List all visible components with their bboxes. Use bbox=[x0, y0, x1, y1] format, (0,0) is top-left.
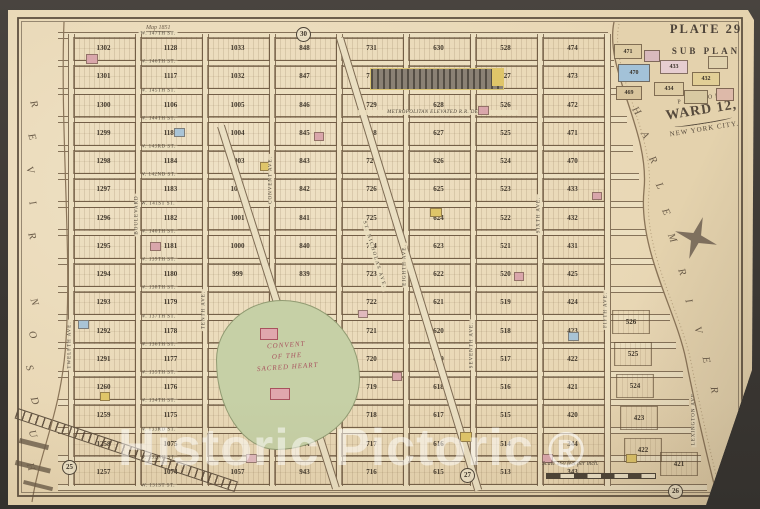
harlem-river-letter: L bbox=[653, 181, 666, 192]
hudson-river-letter: O bbox=[26, 330, 39, 342]
harlem-river-letter: V bbox=[691, 325, 704, 335]
hudson-river-letter: V bbox=[23, 165, 36, 175]
harlem-river-letter: E bbox=[700, 356, 712, 366]
plate-reference-circle: 30 bbox=[296, 27, 311, 42]
map-sheet: W. 147TH ST.W. 146TH ST.W. 145TH ST.W. 1… bbox=[8, 10, 754, 505]
subplan-block-number: 432 bbox=[693, 76, 719, 82]
plate-title: PLATE 29 bbox=[653, 22, 759, 37]
hudson-river-letter: R bbox=[27, 99, 40, 109]
scale-text: Scale 160 feet per inch. bbox=[542, 461, 598, 467]
subplan-block-number: 470 bbox=[619, 70, 649, 76]
subplan-block: 469 bbox=[616, 86, 642, 100]
subplan-block bbox=[708, 56, 728, 69]
subplan-block bbox=[684, 90, 708, 104]
map-source-note: Map 1851 bbox=[146, 25, 171, 32]
hudson-river-letter: S bbox=[23, 364, 35, 373]
hudson-river-letter: H bbox=[24, 462, 37, 474]
hudson-river-letter: E bbox=[25, 132, 38, 142]
harlem-river-letter: I bbox=[682, 298, 694, 306]
subplan-block: 433 bbox=[660, 60, 688, 74]
plate-reference-circle: 26 bbox=[668, 484, 683, 499]
subplan-block: 432 bbox=[692, 72, 720, 86]
harlem-river-letter: E bbox=[659, 207, 672, 218]
subplan-block-number: 434 bbox=[655, 86, 683, 92]
harlem-river-letter: H bbox=[629, 105, 643, 118]
map-annotations: PLATE 29 SUB PLAN PART OF WARD 12, NEW Y… bbox=[8, 10, 754, 505]
harlem-river-letter: R bbox=[675, 267, 688, 278]
hudson-river-letter: I bbox=[26, 200, 38, 208]
photo-background: W. 147TH ST.W. 146TH ST.W. 145TH ST.W. 1… bbox=[0, 0, 760, 509]
plate-reference-circle: 25 bbox=[62, 460, 77, 475]
hudson-river-letter: N bbox=[28, 297, 41, 308]
subplan-block: 470 bbox=[618, 64, 650, 82]
subplan-block bbox=[716, 88, 734, 101]
harlem-river-letter: R bbox=[708, 386, 720, 395]
subplan-block-number: 471 bbox=[615, 49, 641, 55]
subplan-block-number: 433 bbox=[661, 64, 687, 70]
harlem-river-letter: M bbox=[665, 232, 679, 245]
hudson-river-letter: R bbox=[25, 231, 38, 241]
harlem-river-letter: R bbox=[646, 155, 659, 167]
subplan-title: SUB PLAN bbox=[653, 46, 759, 56]
plate-reference-circle: 27 bbox=[460, 468, 475, 483]
subplan-block: 471 bbox=[614, 44, 642, 59]
subplan-block bbox=[644, 50, 660, 62]
hudson-river-letter: D bbox=[28, 396, 41, 408]
subplan-block: 434 bbox=[654, 82, 684, 96]
hudson-river-letter: U bbox=[26, 429, 39, 441]
scale-bar bbox=[546, 473, 656, 479]
subplan-block-number: 469 bbox=[617, 90, 641, 96]
